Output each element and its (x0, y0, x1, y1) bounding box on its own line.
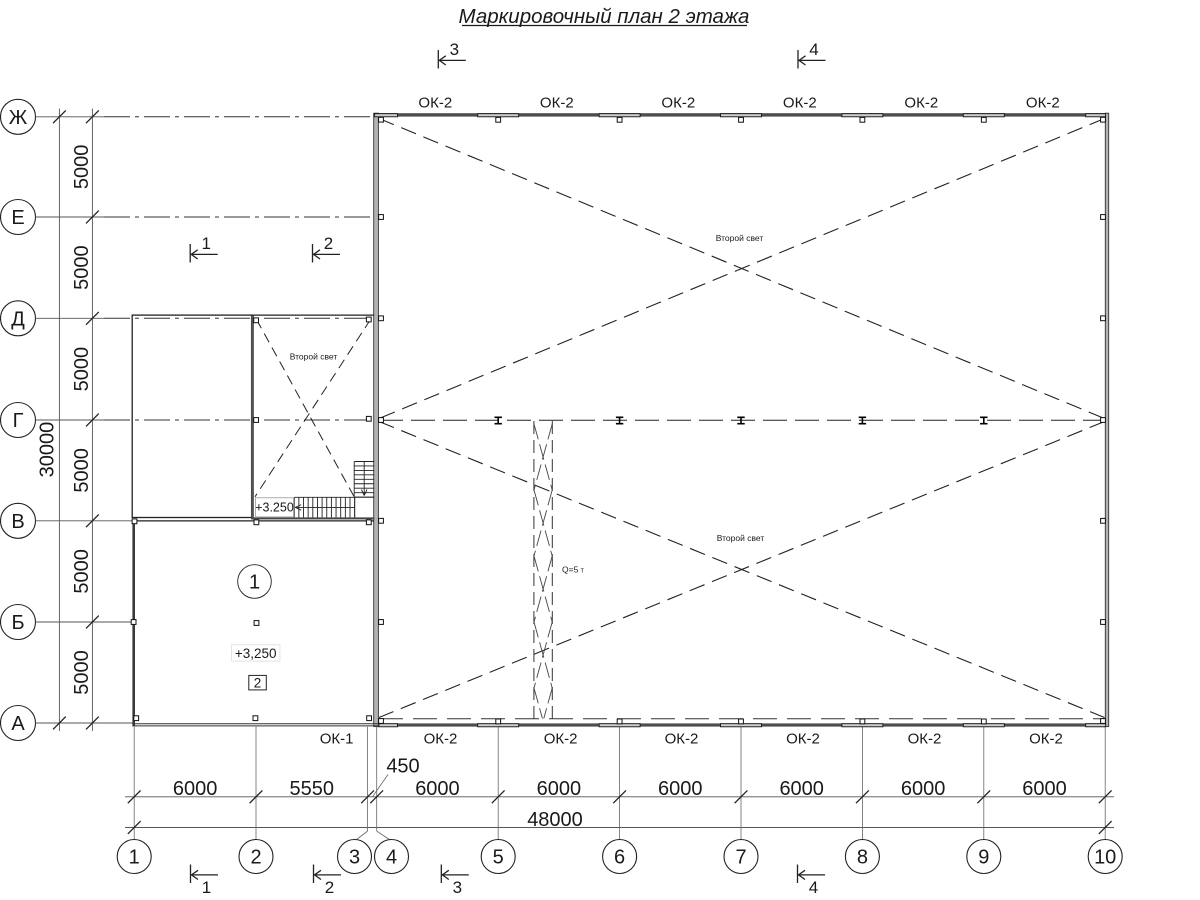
svg-text:ОК-2: ОК-2 (1026, 95, 1060, 112)
svg-text:Б: Б (11, 612, 24, 634)
svg-text:ОК-2: ОК-2 (540, 95, 574, 112)
svg-text:ОК-2: ОК-2 (908, 731, 942, 748)
svg-text:Второй свет: Второй свет (717, 533, 765, 543)
svg-text:5000: 5000 (71, 347, 93, 392)
svg-text:5000: 5000 (71, 145, 93, 190)
svg-text:ОК-2: ОК-2 (783, 95, 817, 112)
svg-text:3: 3 (450, 40, 459, 59)
svg-text:8: 8 (857, 847, 868, 869)
svg-text:Г: Г (13, 410, 24, 432)
svg-text:6000: 6000 (779, 778, 824, 800)
svg-text:6000: 6000 (658, 778, 703, 800)
svg-text:5000: 5000 (71, 448, 93, 493)
svg-text:10: 10 (1094, 847, 1116, 869)
svg-text:2: 2 (325, 878, 334, 897)
svg-text:6000: 6000 (901, 778, 946, 800)
svg-text:ОК-2: ОК-2 (904, 95, 938, 112)
svg-text:3: 3 (453, 878, 462, 897)
svg-text:5000: 5000 (71, 549, 93, 594)
svg-text:6000: 6000 (173, 778, 218, 800)
svg-text:ОК-2: ОК-2 (544, 731, 578, 748)
svg-text:Д: Д (11, 309, 25, 331)
svg-text:ОК-2: ОК-2 (665, 731, 699, 748)
svg-text:Второй свет: Второй свет (716, 233, 764, 243)
svg-text:1: 1 (129, 847, 140, 869)
svg-text:1: 1 (249, 572, 260, 594)
svg-text:ОК-2: ОК-2 (786, 731, 820, 748)
svg-text:6000: 6000 (1022, 778, 1067, 800)
svg-text:5: 5 (493, 847, 504, 869)
svg-text:3: 3 (349, 847, 360, 869)
svg-text:48000: 48000 (527, 809, 583, 831)
svg-text:ОК-2: ОК-2 (424, 731, 458, 748)
svg-text:5000: 5000 (71, 245, 93, 290)
svg-text:А: А (11, 713, 25, 735)
svg-text:4: 4 (809, 40, 818, 59)
svg-text:ОК-1: ОК-1 (320, 731, 354, 748)
svg-text:9: 9 (978, 847, 989, 869)
svg-text:5000: 5000 (71, 650, 93, 695)
svg-text:6000: 6000 (537, 778, 582, 800)
svg-text:6: 6 (614, 847, 625, 869)
svg-text:2: 2 (250, 847, 261, 869)
svg-text:6000: 6000 (415, 778, 460, 800)
svg-text:4: 4 (809, 878, 818, 897)
svg-text:5550: 5550 (290, 778, 335, 800)
svg-text:+3,250: +3,250 (235, 646, 277, 661)
svg-text:В: В (11, 511, 24, 533)
svg-text:ОК-2: ОК-2 (1029, 731, 1063, 748)
svg-text:+3.250: +3.250 (255, 501, 294, 515)
svg-text:ОК-2: ОК-2 (661, 95, 695, 112)
svg-text:2: 2 (324, 234, 333, 253)
svg-text:ОК-2: ОК-2 (418, 95, 452, 112)
svg-text:Второй свет: Второй свет (290, 352, 338, 362)
svg-text:450: 450 (386, 756, 419, 778)
svg-text:7: 7 (735, 847, 746, 869)
svg-text:30000: 30000 (37, 422, 59, 478)
svg-text:4: 4 (386, 847, 397, 869)
svg-text:1: 1 (202, 878, 211, 897)
svg-text:Ж: Ж (9, 107, 28, 129)
svg-text:1: 1 (201, 234, 210, 253)
svg-text:Е: Е (11, 207, 24, 229)
svg-text:2: 2 (254, 675, 262, 690)
svg-text:Маркировочный план 2 этажа: Маркировочный план 2 этажа (459, 5, 750, 28)
